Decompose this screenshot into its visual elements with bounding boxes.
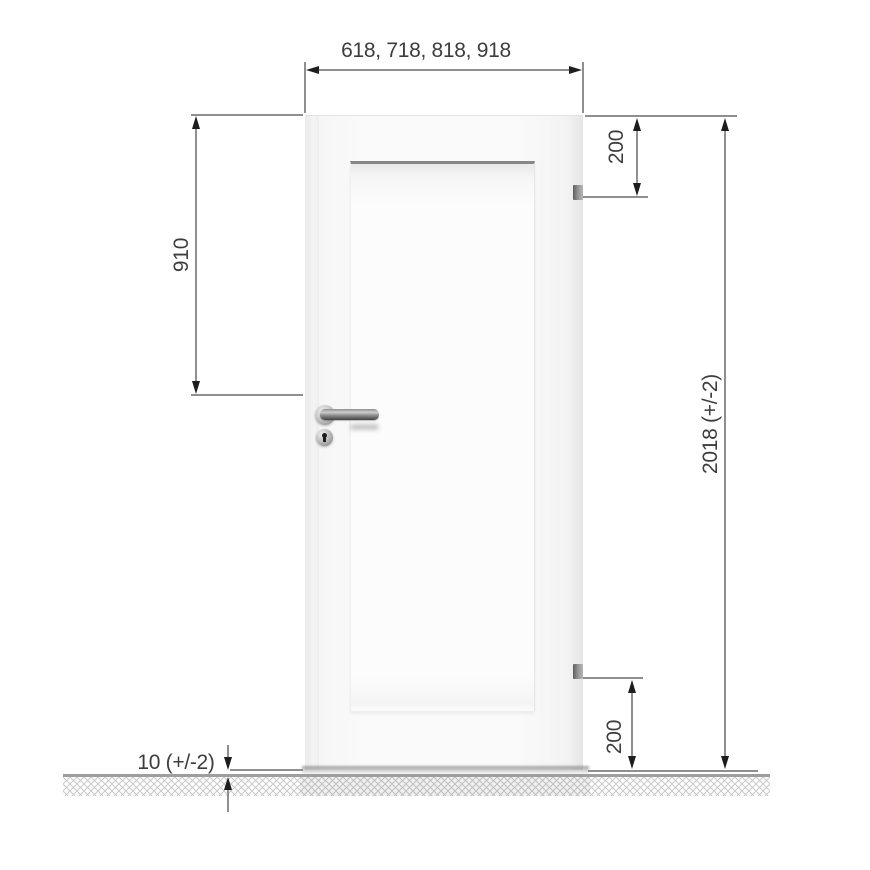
- arrow-up-icon: [192, 116, 200, 129]
- top-hinge: [573, 185, 583, 200]
- keyhole-escutcheon: [316, 429, 333, 446]
- handle-height-dimension-lines: [191, 115, 303, 395]
- arrow-down-icon: [192, 381, 200, 394]
- floor-hatch: [63, 777, 770, 796]
- arrow-down-icon: [628, 756, 636, 769]
- top-hinge-offset-label: 200: [605, 130, 629, 164]
- arrow-up-icon: [721, 118, 729, 131]
- keyhole-icon: [322, 433, 327, 438]
- door-bottom-shadow: [302, 766, 589, 775]
- bottom-hinge-offset-label: 200: [603, 720, 627, 754]
- arrow-down-icon: [224, 757, 232, 770]
- width-dimension-lines: [305, 62, 583, 113]
- bottom-hinge: [573, 664, 583, 679]
- arrow-left-icon: [306, 66, 319, 74]
- door-panel: [350, 161, 535, 711]
- door-left-edge: [305, 116, 319, 770]
- floor-gap-dimension-lines: [228, 745, 303, 812]
- door-dimension-diagram: 618, 718, 818, 918 910 200 2018 (+/-2) 2…: [0, 0, 870, 870]
- arrow-up-icon: [633, 118, 641, 131]
- door-height-label: 2018 (+/-2): [699, 374, 723, 474]
- arrow-up-icon: [224, 777, 232, 790]
- arrow-down-icon: [721, 756, 729, 769]
- handle-shadow: [350, 424, 379, 430]
- door-leaf: [305, 115, 583, 770]
- floor: [63, 776, 770, 797]
- handle-height-label: 910: [170, 238, 194, 272]
- floor-shadow-under-door: [300, 777, 590, 796]
- door-handle-lever: [320, 409, 379, 420]
- floor-clearance-label: 10 (+/-2): [137, 751, 214, 775]
- door-width-label: 618, 718, 818, 918: [341, 39, 511, 63]
- arrow-down-icon: [633, 183, 641, 196]
- arrow-up-icon: [628, 680, 636, 693]
- arrow-right-icon: [569, 66, 582, 74]
